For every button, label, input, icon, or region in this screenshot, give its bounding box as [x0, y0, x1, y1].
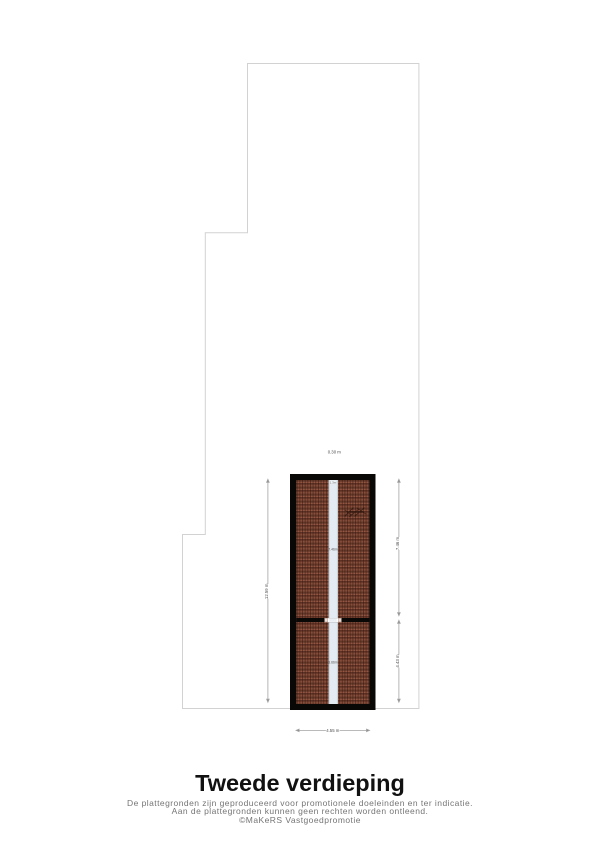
svg-text:7.46 m: 7.46 m: [395, 537, 400, 551]
svg-text:3.66m: 3.66m: [328, 660, 338, 664]
svg-text:12.59 m: 12.59 m: [264, 583, 269, 599]
svg-text:0.30 m: 0.30 m: [328, 450, 342, 455]
svg-text:4.55 m: 4.55 m: [326, 728, 340, 733]
svg-text:1.3m: 1.3m: [330, 480, 337, 484]
svg-text:4.43 m: 4.43 m: [395, 654, 400, 668]
svg-text:7.46m: 7.46m: [328, 547, 338, 551]
